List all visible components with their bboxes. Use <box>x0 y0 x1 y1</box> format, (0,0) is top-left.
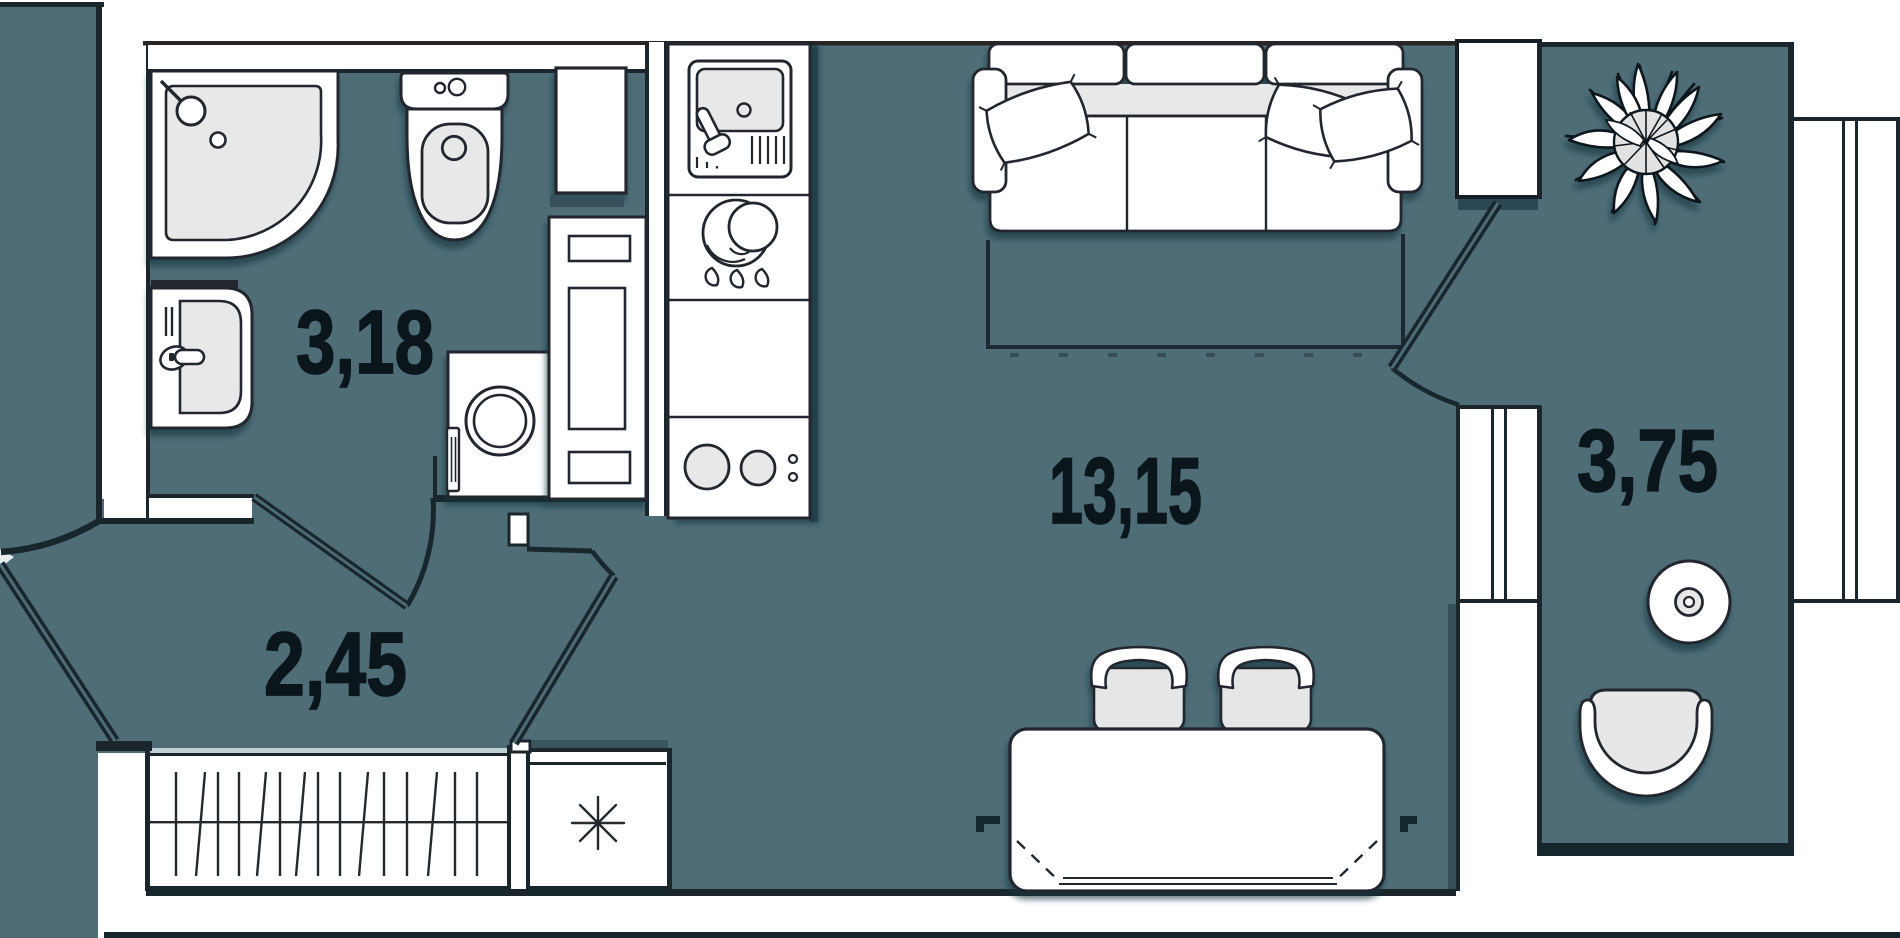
svg-text:13,15: 13,15 <box>1049 438 1202 543</box>
svg-text:3,18: 3,18 <box>296 293 434 393</box>
svg-text:3,75: 3,75 <box>1577 411 1718 510</box>
svg-text:2,45: 2,45 <box>264 615 407 715</box>
